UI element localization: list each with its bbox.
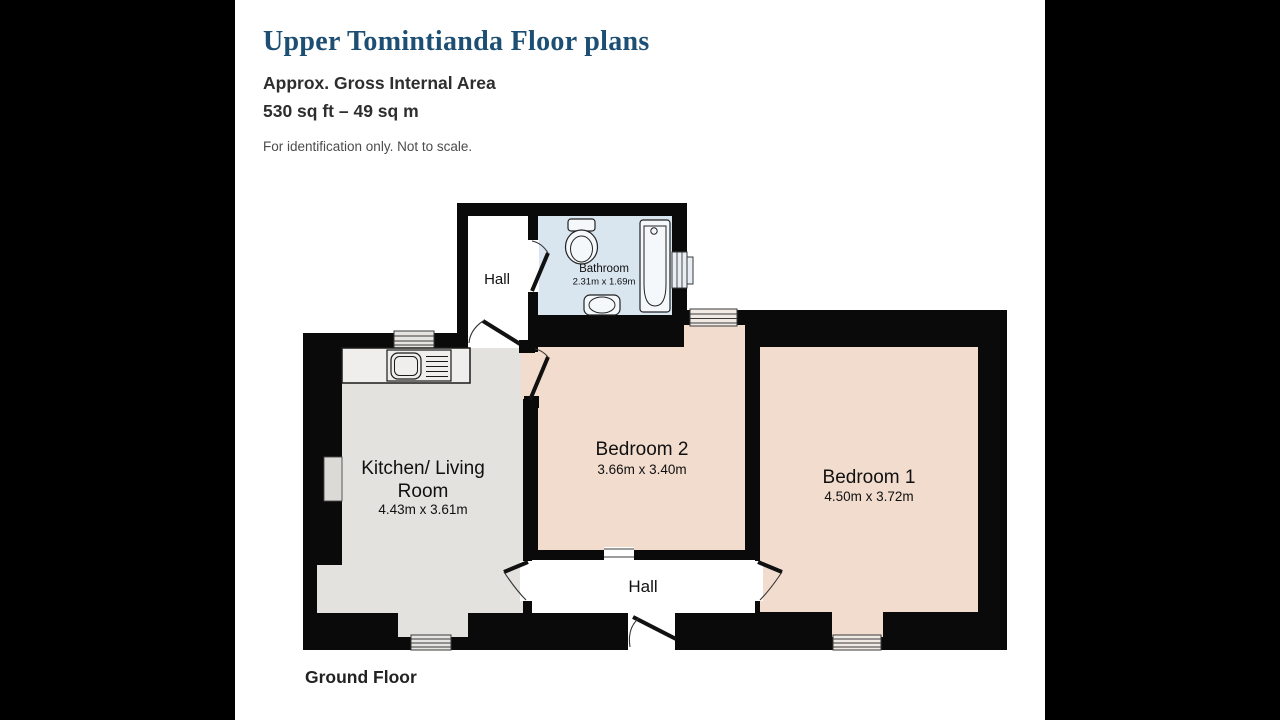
bathroom-label: Bathroom	[579, 263, 629, 275]
window-kitchen-left	[324, 457, 342, 501]
kitchen-label-line1: Kitchen/ Living	[361, 458, 485, 479]
toilet-icon	[566, 219, 598, 264]
window-bedroom2-top	[690, 309, 737, 326]
room-bedroom-2	[538, 325, 745, 550]
bedroom2-dims: 3.66m x 3.40m	[597, 462, 686, 477]
hall-bottom-label: Hall	[628, 577, 657, 596]
window-bathroom-right	[672, 252, 693, 288]
kitchen-dims: 4.43m x 3.61m	[378, 502, 467, 517]
bedroom2-label: Bedroom 2	[596, 439, 689, 460]
window-kitchen-top	[394, 331, 434, 348]
window-kitchen-bottom	[411, 635, 451, 650]
bedroom1-label: Bedroom 1	[823, 467, 916, 488]
window-bedroom1-bottom	[833, 635, 881, 650]
bedroom1-dims: 4.50m x 3.72m	[824, 489, 913, 504]
bathroom-dims: 2.31m x 1.69m	[573, 277, 636, 288]
kitchen-label-line2: Room	[398, 481, 449, 502]
sink-icon	[584, 295, 620, 315]
floor-plan: Hall Bathroom 2.31m x 1.69m Kitchen/ Liv…	[0, 0, 1280, 720]
hall-top-label: Hall	[484, 271, 510, 288]
floor-name-label: Ground Floor	[305, 667, 417, 688]
floorplan-page: Upper Tomintianda Floor plans Approx. Gr…	[0, 0, 1280, 720]
bathtub-icon	[640, 220, 670, 312]
kitchen-counter	[342, 348, 470, 383]
